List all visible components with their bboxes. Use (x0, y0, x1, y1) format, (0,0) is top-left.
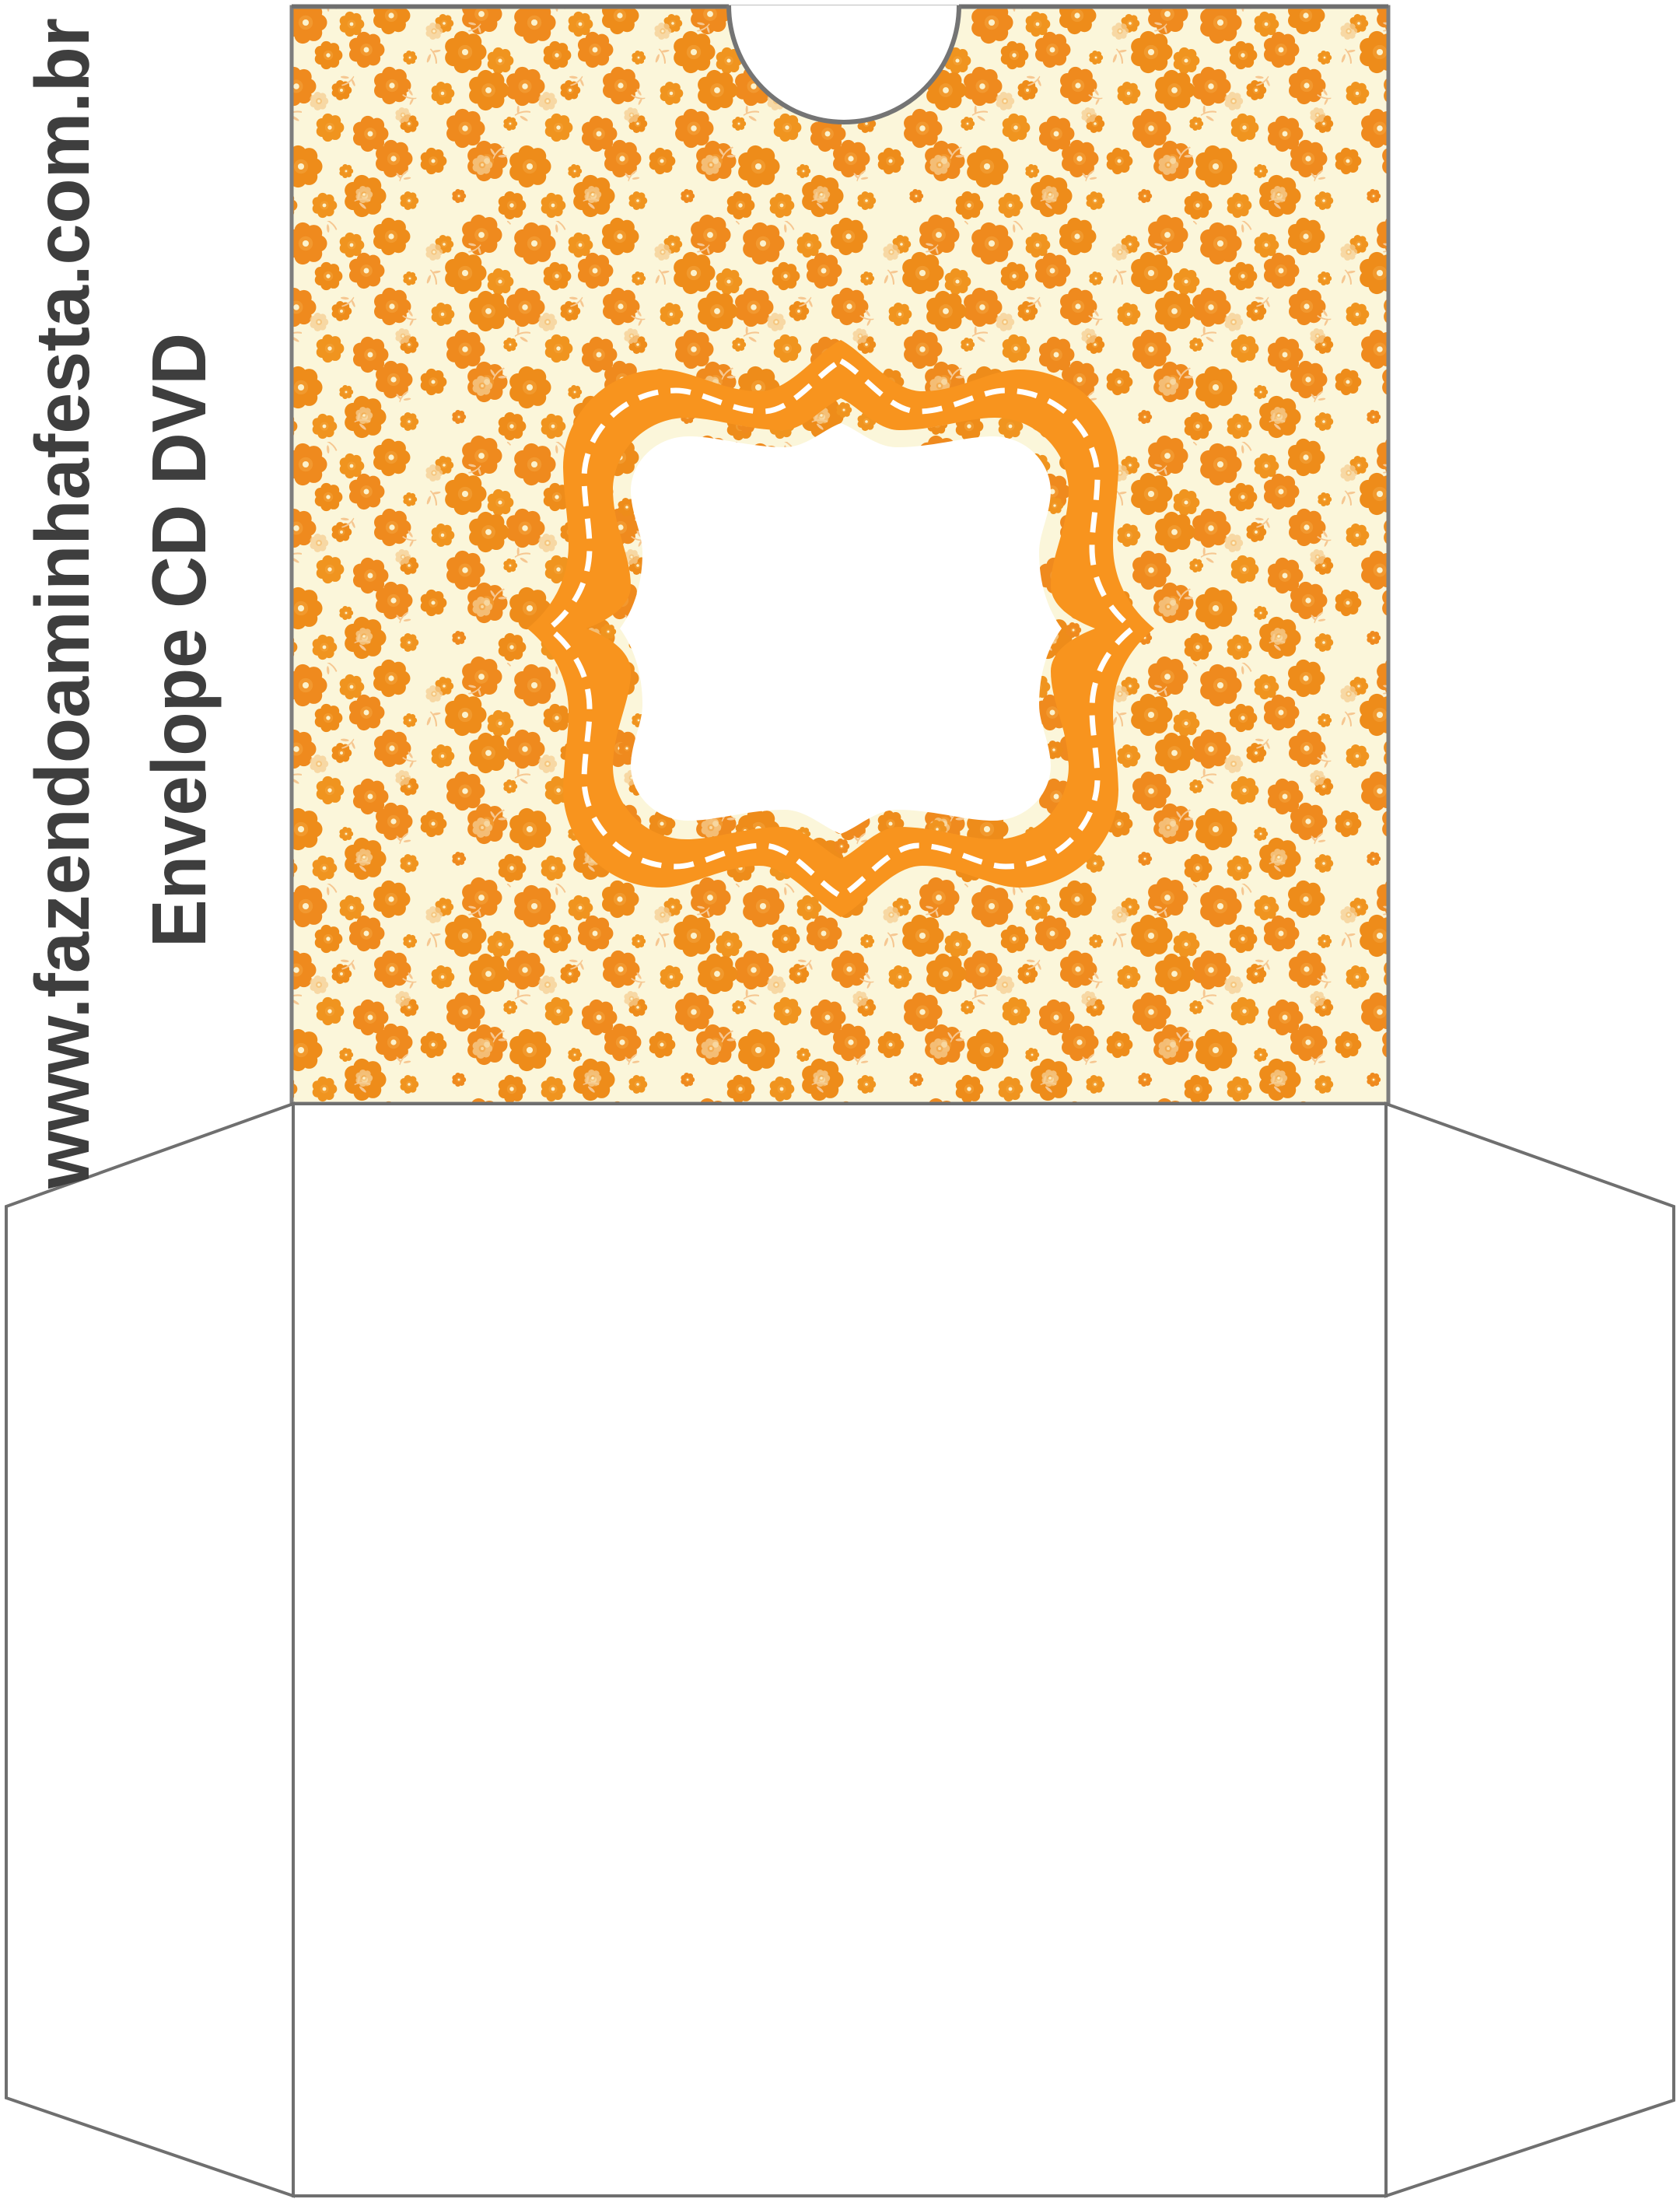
svg-text:www.fazendoaminhafesta.com.br: www.fazendoaminhafesta.com.br (19, 18, 105, 1189)
svg-text:Envelope CD DVD: Envelope CD DVD (136, 333, 222, 947)
